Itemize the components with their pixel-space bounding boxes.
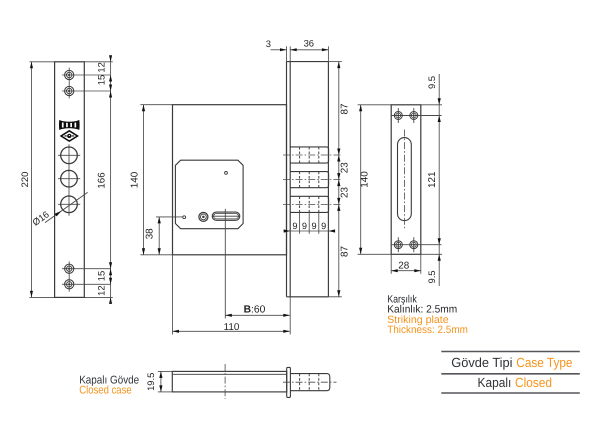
svg-text:12: 12 [96, 62, 107, 72]
svg-text:Kapalı: Kapalı [478, 375, 512, 390]
svg-text:9: 9 [311, 221, 316, 231]
svg-text:15: 15 [96, 75, 107, 85]
svg-text:19.5: 19.5 [145, 373, 156, 391]
svg-text:140: 140 [360, 171, 371, 188]
svg-text:12: 12 [96, 285, 107, 295]
svg-text:B:60: B:60 [244, 305, 266, 316]
svg-text:9: 9 [321, 221, 326, 231]
svg-text:140: 140 [129, 171, 140, 188]
svg-text:9.5: 9.5 [426, 76, 437, 89]
svg-text:3: 3 [266, 38, 271, 49]
svg-text:28: 28 [398, 261, 409, 272]
svg-text:9: 9 [302, 221, 307, 231]
svg-text:Closed case: Closed case [79, 384, 132, 396]
svg-text:38: 38 [145, 228, 156, 239]
svg-text:23: 23 [340, 162, 351, 173]
svg-text:110: 110 [224, 322, 240, 333]
svg-text:9.5: 9.5 [426, 270, 437, 283]
svg-text:23: 23 [340, 187, 351, 198]
svg-text:121: 121 [427, 171, 438, 188]
svg-text:Thickness: 2.5mm: Thickness: 2.5mm [387, 324, 468, 336]
svg-text:9: 9 [292, 221, 297, 231]
svg-text:Gövde Tipi: Gövde Tipi [451, 355, 512, 370]
svg-text:166: 166 [96, 172, 107, 188]
svg-text:220: 220 [19, 172, 30, 188]
svg-text:15: 15 [96, 271, 107, 281]
svg-text:Case Type: Case Type [516, 355, 572, 370]
svg-text:87: 87 [340, 246, 351, 257]
svg-text:Ø16: Ø16 [30, 209, 51, 228]
svg-text:36: 36 [304, 37, 314, 48]
svg-text:87: 87 [340, 104, 351, 115]
svg-text:Closed: Closed [515, 375, 552, 390]
